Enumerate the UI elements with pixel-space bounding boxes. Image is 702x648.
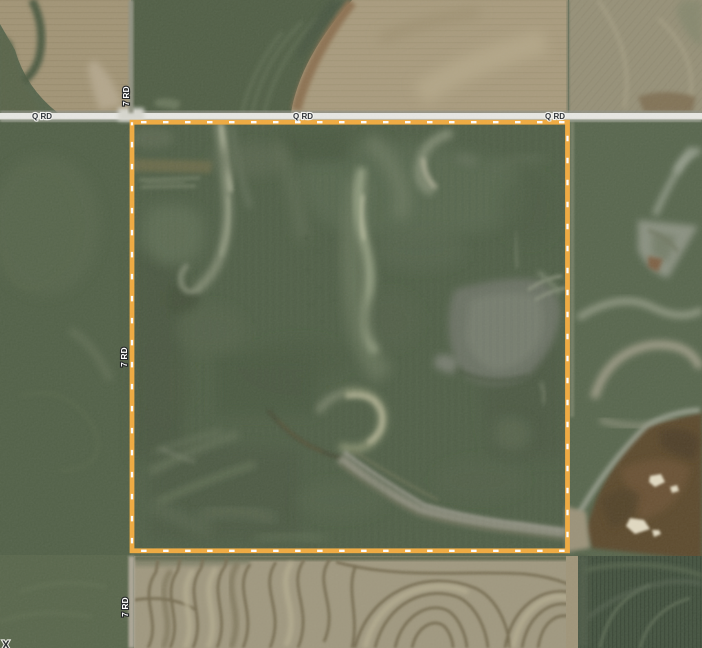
svg-text:Q RD: Q RD xyxy=(545,112,565,121)
svg-text:X: X xyxy=(2,640,10,648)
svg-text:Q RD: Q RD xyxy=(293,112,313,121)
svg-text:7 RD: 7 RD xyxy=(120,597,130,617)
svg-text:7 RD: 7 RD xyxy=(119,347,129,367)
svg-text:7 RD: 7 RD xyxy=(121,86,131,106)
svg-text:Q RD: Q RD xyxy=(32,112,52,121)
